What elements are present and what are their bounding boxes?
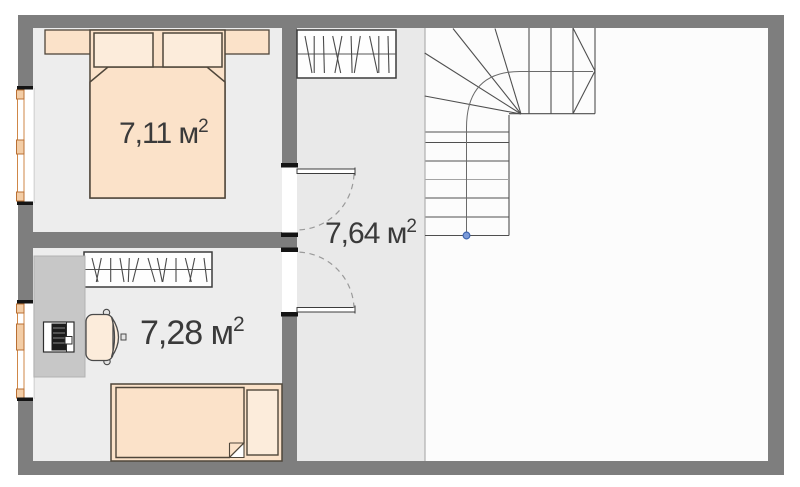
svg-text:7,28 м2: 7,28 м2: [140, 313, 244, 352]
svg-text:7,11 м2: 7,11 м2: [119, 116, 208, 150]
svg-text:7,64 м2: 7,64 м2: [325, 216, 416, 250]
